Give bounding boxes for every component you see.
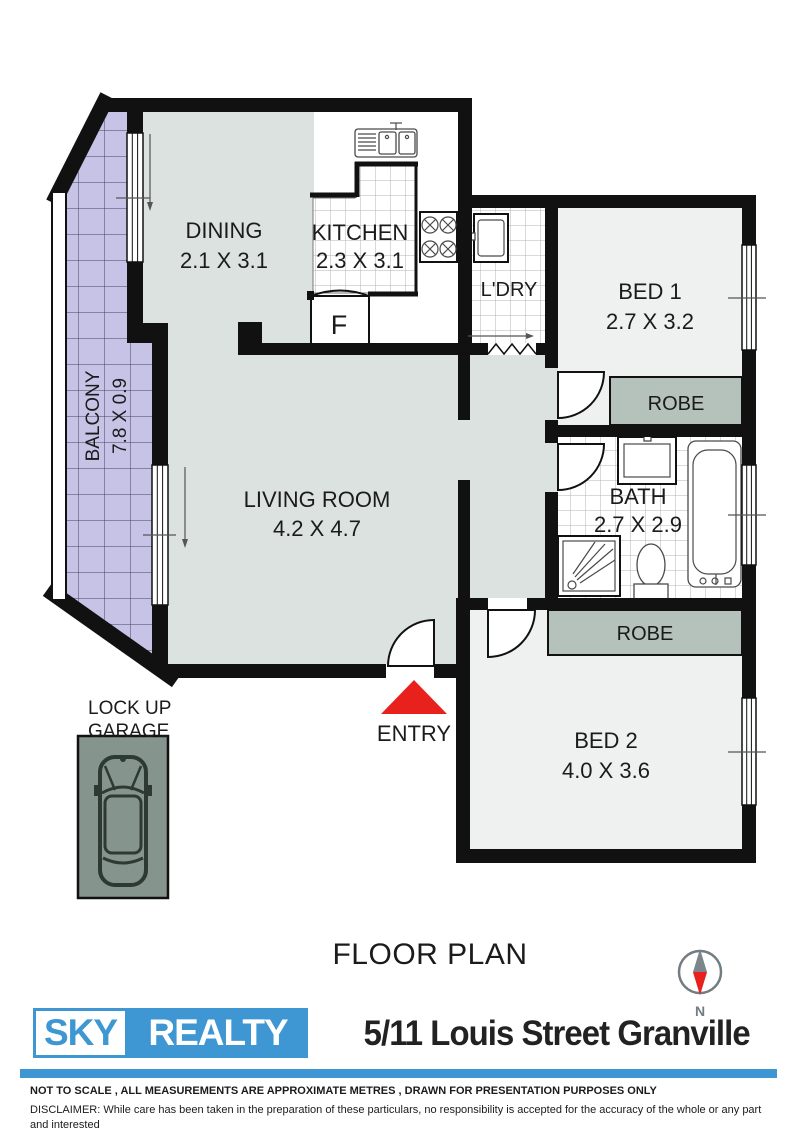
laundry-bifold-door — [488, 344, 536, 354]
property-address: 5/11 Louis Street Granville — [364, 1014, 750, 1054]
dining-label: DINING — [186, 218, 263, 243]
living-label: LIVING ROOM — [244, 487, 391, 512]
robe2-label: ROBE — [617, 623, 674, 645]
dining-dims: 2.1 X 3.1 — [180, 248, 268, 273]
living-dims: 4.2 X 4.7 — [273, 516, 361, 541]
logo-realty-box: REALTY — [128, 1008, 308, 1058]
toilet-icon — [634, 544, 668, 601]
disclaimer: DISCLAIMER: While care has been taken in… — [30, 1103, 777, 1132]
bed2-dims: 4.0 X 3.6 — [562, 758, 650, 783]
shower-icon — [558, 536, 620, 596]
floor-plan-page: ENTRY DINING 2.1 X 3.1 KITCHEN 2.3 X 3.1… — [0, 0, 800, 1132]
balcony-dims: 7.8 X 0.9 — [110, 378, 131, 454]
cooktop-icon — [420, 212, 457, 262]
laundry-tub — [468, 214, 508, 262]
bed1-dims: 2.7 X 3.2 — [606, 309, 694, 334]
logo-sky-box: SKY — [33, 1008, 128, 1058]
kitchen-label: KITCHEN — [312, 220, 409, 245]
bath-dims: 2.7 X 2.9 — [594, 512, 682, 537]
balcony-label: BALCONY — [83, 370, 104, 461]
bathtub-icon — [688, 441, 741, 587]
scale-note: NOT TO SCALE , ALL MEASUREMENTS ARE APPR… — [30, 1085, 775, 1097]
accent-divider-bar — [20, 1069, 777, 1078]
hall-floor — [458, 355, 558, 598]
laundry-label: L'DRY — [481, 279, 538, 301]
fridge-label: F — [331, 310, 348, 340]
bed2-label: BED 2 — [574, 728, 638, 753]
entry-marker: ENTRY — [377, 680, 451, 746]
robe1-label: ROBE — [648, 393, 705, 415]
entry-label: ENTRY — [377, 721, 451, 746]
agency-logo: SKY REALTY — [33, 1008, 308, 1058]
kitchen-dims: 2.3 X 3.1 — [316, 248, 404, 273]
garage-label-line2: GARAGE — [88, 721, 169, 742]
disclaimer-line1: DISCLAIMER: While care has been taken in… — [30, 1103, 777, 1132]
balcony-railing — [52, 192, 66, 600]
bath-vanity — [618, 430, 676, 484]
bed1-label: BED 1 — [618, 279, 682, 304]
garage-area — [78, 736, 168, 898]
bath-label: BATH — [609, 484, 666, 509]
entry-arrow-icon — [381, 680, 447, 714]
page-title: FLOOR PLAN — [60, 938, 800, 972]
garage-label-line1: LOCK UP — [88, 698, 171, 719]
